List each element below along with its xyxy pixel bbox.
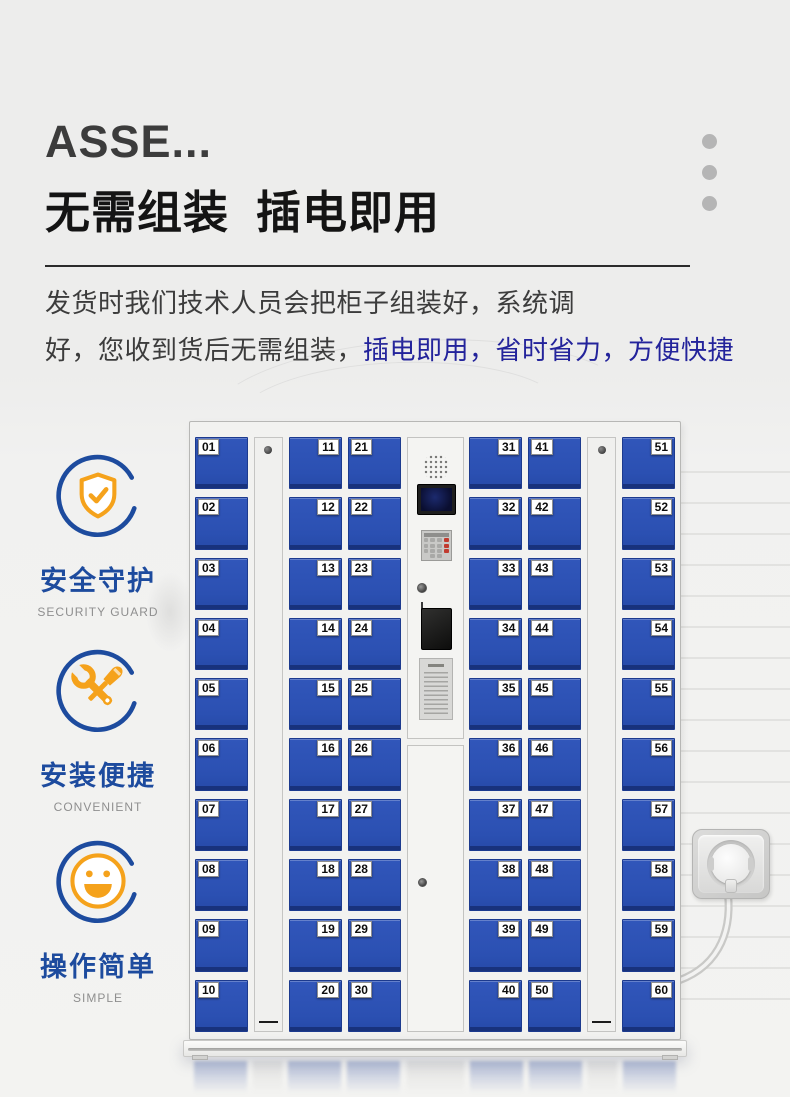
locker-door-41: 41 xyxy=(528,437,581,489)
cabinet-foot xyxy=(662,1055,678,1060)
reflection-block xyxy=(529,1061,582,1093)
door-number: 44 xyxy=(531,620,552,636)
locker-column: 51525354555657585960 xyxy=(622,437,675,1032)
door-number: 16 xyxy=(317,740,338,756)
locker-door-23: 23 xyxy=(348,558,401,610)
door-number: 58 xyxy=(651,861,672,877)
locker-door-17: 17 xyxy=(289,799,342,851)
door-number: 19 xyxy=(317,921,338,937)
speaker-icon xyxy=(423,454,449,480)
feature-label-cn: 操作简单 xyxy=(27,945,169,984)
locker-door-21: 21 xyxy=(348,437,401,489)
door-number: 29 xyxy=(351,921,372,937)
plug-cable-tab xyxy=(725,879,737,893)
door-number: 49 xyxy=(531,921,552,937)
locker-door-44: 44 xyxy=(528,618,581,670)
door-number: 56 xyxy=(651,740,672,756)
locker-door-28: 28 xyxy=(348,859,401,911)
locker-column: 41424344454647484950 xyxy=(528,437,581,1032)
locker-door-58: 58 xyxy=(622,859,675,911)
locker-door-06: 06 xyxy=(195,738,248,790)
locker-door-49: 49 xyxy=(528,919,581,971)
locker-door-43: 43 xyxy=(528,558,581,610)
feature-label-en: SECURITY GUARD xyxy=(27,605,169,619)
door-number: 26 xyxy=(351,740,372,756)
cabinet-base xyxy=(183,1040,687,1057)
feature-label-en: CONVENIENT xyxy=(27,800,169,814)
reflection-block xyxy=(288,1061,341,1093)
locker-column: 01020304050607080910 xyxy=(195,437,248,1032)
door-number: 27 xyxy=(351,801,372,817)
locker-door-51: 51 xyxy=(622,437,675,489)
locker-door-33: 33 xyxy=(469,558,522,610)
door-number: 25 xyxy=(351,680,372,696)
door-number: 48 xyxy=(531,861,552,877)
door-number: 57 xyxy=(651,801,672,817)
door-number: 37 xyxy=(498,801,519,817)
panel-door-split xyxy=(407,738,464,746)
door-number: 23 xyxy=(351,560,372,576)
door-number: 06 xyxy=(198,740,219,756)
locker-door-29: 29 xyxy=(348,919,401,971)
door-number: 42 xyxy=(531,499,552,515)
side-strip xyxy=(587,437,616,1032)
door-number: 34 xyxy=(498,620,519,636)
door-number: 20 xyxy=(317,982,338,998)
door-number: 50 xyxy=(531,982,552,998)
locker-door-27: 27 xyxy=(348,799,401,851)
locker-cabinet: 0102030405060708091011121314151617181920… xyxy=(189,421,681,1040)
locker-door-02: 02 xyxy=(195,497,248,549)
locker-door-56: 56 xyxy=(622,738,675,790)
door-number: 46 xyxy=(531,740,552,756)
lock-icon xyxy=(418,878,427,887)
door-number: 41 xyxy=(531,439,552,455)
door-number: 07 xyxy=(198,801,219,817)
locker-door-04: 04 xyxy=(195,618,248,670)
feature-security-guard: 安全守护SECURITY GUARD xyxy=(27,450,169,619)
strip-bottom-mark xyxy=(259,1021,278,1023)
locker-door-08: 08 xyxy=(195,859,248,911)
feature-simple-operation: 操作简单SIMPLE xyxy=(27,836,169,1005)
door-number: 54 xyxy=(651,620,672,636)
tools-icon xyxy=(27,645,169,742)
feature-label-en: SIMPLE xyxy=(27,991,169,1005)
keypad xyxy=(421,530,452,561)
locker-door-54: 54 xyxy=(622,618,675,670)
locker-column: 31323334353637383940 xyxy=(469,437,522,1032)
locker-door-55: 55 xyxy=(622,678,675,730)
locker-door-36: 36 xyxy=(469,738,522,790)
door-number: 08 xyxy=(198,861,219,877)
door-number: 52 xyxy=(651,499,672,515)
door-number: 32 xyxy=(498,499,519,515)
locker-door-24: 24 xyxy=(348,618,401,670)
door-number: 11 xyxy=(318,439,339,455)
door-number: 28 xyxy=(351,861,372,877)
door-number: 45 xyxy=(531,680,552,696)
door-number: 35 xyxy=(498,680,519,696)
door-number: 60 xyxy=(651,982,672,998)
floor-reflection xyxy=(189,1061,681,1093)
locker-door-34: 34 xyxy=(469,618,522,670)
door-number: 22 xyxy=(351,499,372,515)
door-number: 36 xyxy=(498,740,519,756)
locker-door-13: 13 xyxy=(289,558,342,610)
instruction-label xyxy=(419,658,453,720)
lock-icon xyxy=(264,446,272,454)
strip-bottom-mark xyxy=(592,1021,611,1023)
door-number: 04 xyxy=(198,620,219,636)
control-panel xyxy=(407,437,464,1032)
title-english: ASSE... xyxy=(45,116,212,168)
door-number: 30 xyxy=(351,982,372,998)
shield-check-icon xyxy=(27,450,169,547)
door-number: 01 xyxy=(198,439,219,455)
locker-door-07: 07 xyxy=(195,799,248,851)
locker-door-20: 20 xyxy=(289,980,342,1032)
reflection-block xyxy=(194,1061,247,1093)
door-number: 59 xyxy=(651,921,672,937)
door-number: 55 xyxy=(651,680,672,696)
locker-door-39: 39 xyxy=(469,919,522,971)
socket-icon xyxy=(692,829,770,899)
locker-column: 11121314151617181920 xyxy=(289,437,342,1032)
locker-door-42: 42 xyxy=(528,497,581,549)
locker-door-31: 31 xyxy=(469,437,522,489)
scanner-panel xyxy=(421,608,452,650)
reflection-block xyxy=(588,1061,617,1093)
locker-door-22: 22 xyxy=(348,497,401,549)
locker-door-35: 35 xyxy=(469,678,522,730)
locker-door-47: 47 xyxy=(528,799,581,851)
locker-door-14: 14 xyxy=(289,618,342,670)
door-number: 47 xyxy=(531,801,552,817)
locker-door-12: 12 xyxy=(289,497,342,549)
reflection-block xyxy=(253,1061,282,1093)
door-number: 15 xyxy=(317,680,338,696)
locker-door-26: 26 xyxy=(348,738,401,790)
locker-door-19: 19 xyxy=(289,919,342,971)
locker-door-37: 37 xyxy=(469,799,522,851)
door-number: 40 xyxy=(498,982,519,998)
locker-door-32: 32 xyxy=(469,497,522,549)
door-number: 53 xyxy=(651,560,672,576)
feature-label-cn: 安全守护 xyxy=(27,559,169,598)
door-number: 33 xyxy=(498,560,519,576)
locker-door-11: 11 xyxy=(289,437,342,489)
locker-door-18: 18 xyxy=(289,859,342,911)
cabinet-doors-area: 0102030405060708091011121314151617181920… xyxy=(195,437,675,1032)
locker-door-10: 10 xyxy=(195,980,248,1032)
reflection-block xyxy=(407,1061,464,1093)
base-groove xyxy=(188,1048,682,1051)
door-number: 10 xyxy=(198,982,219,998)
door-number: 13 xyxy=(317,560,338,576)
reflection-block xyxy=(623,1061,676,1093)
door-number: 09 xyxy=(198,921,219,937)
locker-door-48: 48 xyxy=(528,859,581,911)
reflection-block xyxy=(347,1061,400,1093)
locker-door-01: 01 xyxy=(195,437,248,489)
door-number: 24 xyxy=(351,620,372,636)
lock-icon xyxy=(416,580,428,611)
locker-door-38: 38 xyxy=(469,859,522,911)
paragraph-line1: 发货时我们技术人员会把柜子组装好，系统调 xyxy=(45,288,575,318)
door-number: 31 xyxy=(498,439,519,455)
locker-door-60: 60 xyxy=(622,980,675,1032)
locker-door-25: 25 xyxy=(348,678,401,730)
product-promo-page: ASSE... 无需组装 插电即用 发货时我们技术人员会把柜子组装好，系统调好，… xyxy=(0,0,790,1097)
lock-icon xyxy=(598,446,606,454)
locker-door-57: 57 xyxy=(622,799,675,851)
locker-door-30: 30 xyxy=(348,980,401,1032)
door-number: 21 xyxy=(351,439,372,455)
display-screen xyxy=(417,484,456,515)
side-strip xyxy=(254,437,283,1032)
locker-door-15: 15 xyxy=(289,678,342,730)
door-number: 39 xyxy=(498,921,519,937)
decorative-dots xyxy=(702,134,718,227)
door-number: 18 xyxy=(317,861,338,877)
door-number: 05 xyxy=(198,680,219,696)
power-plug xyxy=(711,844,751,884)
door-number: 17 xyxy=(317,801,338,817)
reflection-block xyxy=(470,1061,523,1093)
door-number: 02 xyxy=(198,499,219,515)
door-number: 43 xyxy=(531,560,552,576)
feature-label-cn: 安装便捷 xyxy=(27,754,169,793)
door-number: 12 xyxy=(317,499,338,515)
locker-door-46: 46 xyxy=(528,738,581,790)
feature-convenient-install: 安装便捷CONVENIENT xyxy=(27,645,169,814)
door-number: 38 xyxy=(498,861,519,877)
cabinet-foot xyxy=(192,1055,208,1060)
locker-door-40: 40 xyxy=(469,980,522,1032)
locker-door-03: 03 xyxy=(195,558,248,610)
smiley-icon xyxy=(27,836,169,933)
divider-line xyxy=(45,265,690,267)
door-number: 03 xyxy=(198,560,219,576)
locker-door-09: 09 xyxy=(195,919,248,971)
locker-door-50: 50 xyxy=(528,980,581,1032)
locker-door-53: 53 xyxy=(622,558,675,610)
door-number: 14 xyxy=(317,620,338,636)
locker-door-52: 52 xyxy=(622,497,675,549)
page-title: 无需组装 插电即用 xyxy=(45,176,440,241)
door-number: 51 xyxy=(651,439,672,455)
locker-door-59: 59 xyxy=(622,919,675,971)
locker-door-05: 05 xyxy=(195,678,248,730)
locker-door-45: 45 xyxy=(528,678,581,730)
locker-door-16: 16 xyxy=(289,738,342,790)
locker-column: 21222324252627282930 xyxy=(348,437,401,1032)
